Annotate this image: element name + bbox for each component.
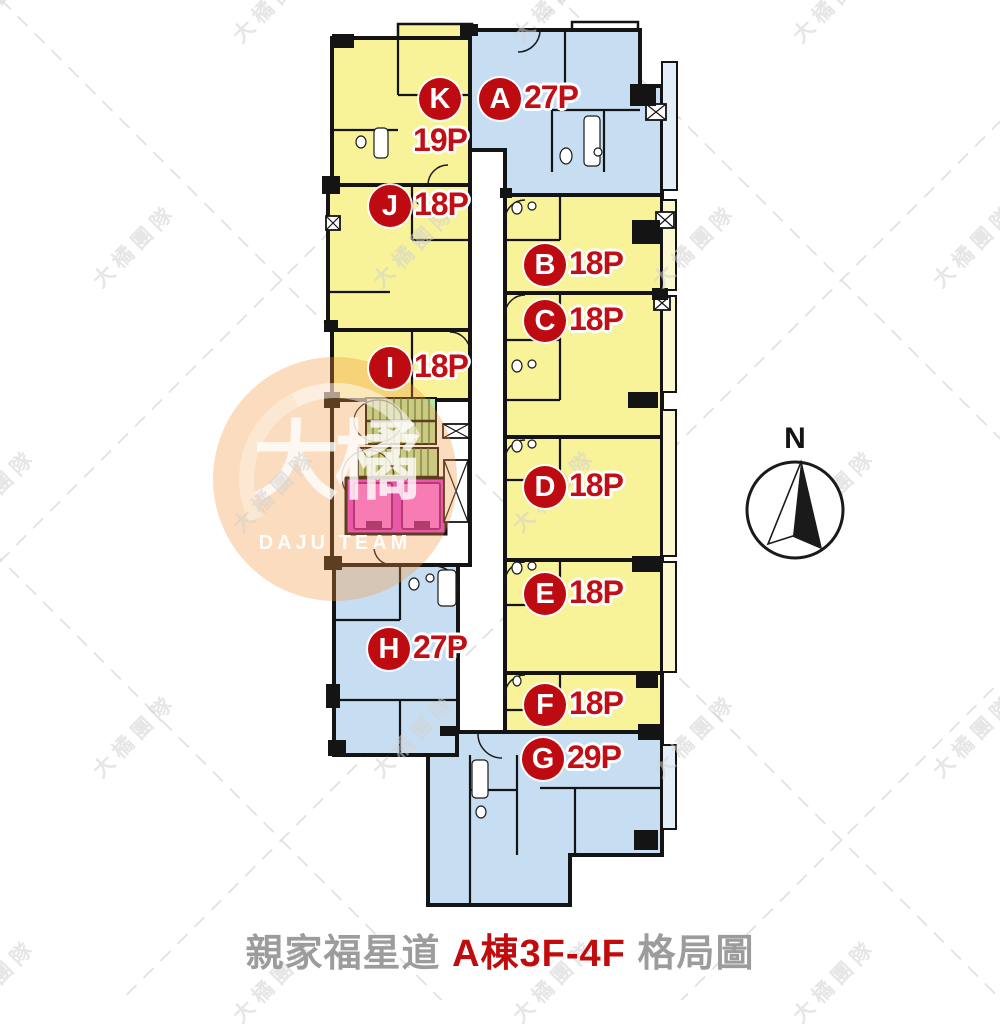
unit-capacity-I: 18P: [414, 348, 468, 385]
unit-letter-F: F: [524, 684, 566, 726]
unit-capacity-A: 27P: [524, 79, 578, 116]
floorplan-page: { "title": { "prefix": "親家福星道 ", "buildi…: [0, 0, 1000, 1000]
compass-rose: [740, 454, 850, 566]
unit-letter-I: I: [369, 347, 411, 389]
plan-title: 親家福星道 A棟3F-4F 格局圖: [0, 922, 1000, 977]
unit-capacity-J: 18P: [414, 186, 468, 223]
compass-n-label: N: [740, 424, 850, 454]
title-building: A棟3F-4F: [452, 933, 626, 975]
title-prefix: 親家福星道: [246, 933, 453, 975]
unit-badges: A27PB18PC18PD18PE18PF18PG29PH27PI18PJ18P…: [0, 0, 1000, 1000]
title-suffix: 格局圖: [626, 933, 755, 975]
unit-capacity-H: 27P: [413, 629, 467, 666]
unit-letter-C: C: [524, 300, 566, 342]
unit-letter-A: A: [479, 78, 521, 120]
unit-letter-E: E: [524, 573, 566, 615]
unit-letter-J: J: [369, 185, 411, 227]
unit-capacity-D: 18P: [569, 467, 623, 504]
unit-letter-B: B: [524, 244, 566, 286]
unit-capacity-G: 29P: [567, 739, 621, 776]
unit-capacity-F: 18P: [569, 685, 623, 722]
compass: N: [740, 424, 850, 570]
unit-capacity-K: 19P: [413, 122, 467, 159]
unit-capacity-E: 18P: [569, 574, 623, 611]
unit-letter-G: G: [522, 738, 564, 780]
unit-capacity-B: 18P: [569, 245, 623, 282]
unit-letter-K: K: [419, 78, 461, 120]
unit-capacity-C: 18P: [569, 301, 623, 338]
unit-letter-D: D: [524, 466, 566, 508]
unit-letter-H: H: [368, 628, 410, 670]
